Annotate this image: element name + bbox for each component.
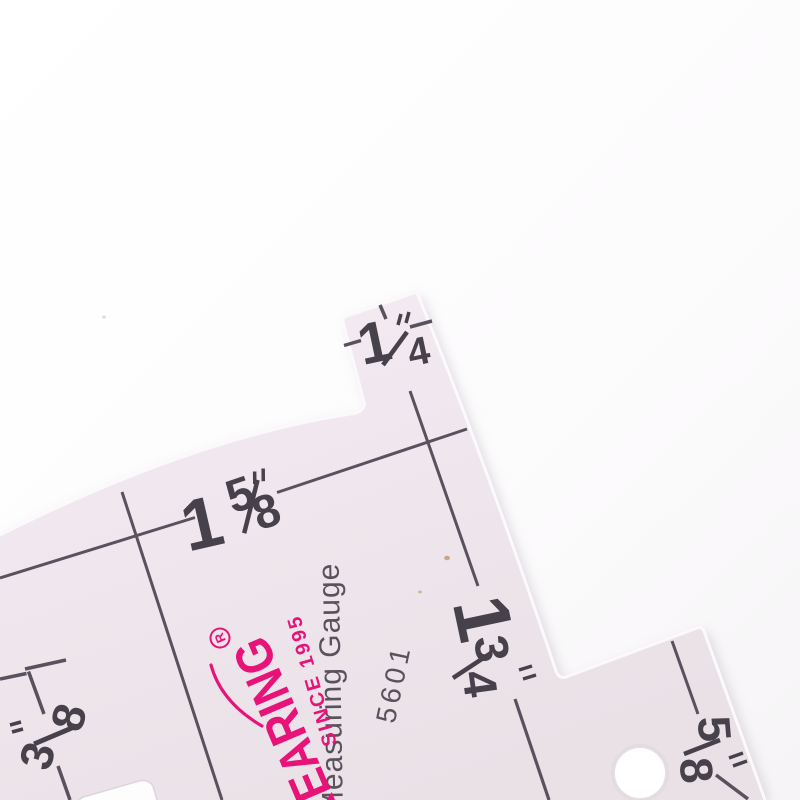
svg-text:8: 8	[670, 755, 724, 785]
svg-text:5: 5	[688, 714, 742, 744]
